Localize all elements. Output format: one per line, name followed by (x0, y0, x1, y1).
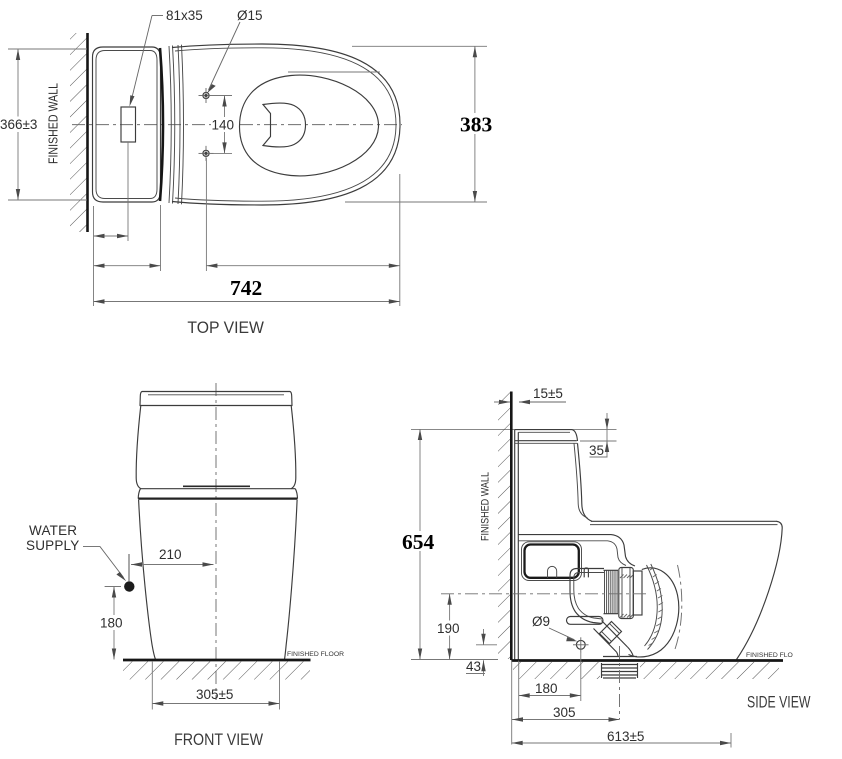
svg-text:FINISHED FLOOR: FINISHED FLOOR (287, 651, 344, 658)
svg-text:WATER: WATER (29, 523, 77, 538)
svg-text:366±3: 366±3 (0, 117, 37, 132)
svg-text:210: 210 (159, 547, 182, 562)
svg-text:15±5: 15±5 (533, 386, 563, 401)
svg-text:742: 742 (230, 276, 262, 300)
svg-text:Ø15: Ø15 (237, 8, 263, 23)
svg-text:Ø9: Ø9 (532, 614, 550, 629)
svg-text:FINISHED WALL: FINISHED WALL (480, 472, 492, 541)
svg-text:140: 140 (212, 118, 235, 133)
svg-text:180: 180 (535, 681, 558, 696)
svg-text:613±5: 613±5 (607, 729, 644, 744)
svg-text:TOP VIEW: TOP VIEW (187, 318, 264, 337)
svg-text:35: 35 (589, 443, 604, 458)
svg-text:FINISHED WALL: FINISHED WALL (47, 83, 61, 164)
svg-text:383: 383 (460, 113, 493, 137)
svg-text:305±5: 305±5 (196, 687, 233, 702)
svg-text:SUPPLY: SUPPLY (26, 538, 79, 553)
svg-text:190: 190 (437, 621, 460, 636)
svg-text:305: 305 (553, 705, 576, 720)
svg-text:180: 180 (100, 616, 123, 631)
svg-text:81x35: 81x35 (166, 8, 203, 23)
svg-text:654: 654 (402, 530, 435, 554)
svg-text:43: 43 (466, 659, 481, 674)
svg-text:SIDE VIEW: SIDE VIEW (747, 693, 811, 712)
svg-text:FINISHED FLO: FINISHED FLO (746, 652, 793, 659)
svg-text:FRONT VIEW: FRONT VIEW (174, 730, 263, 749)
